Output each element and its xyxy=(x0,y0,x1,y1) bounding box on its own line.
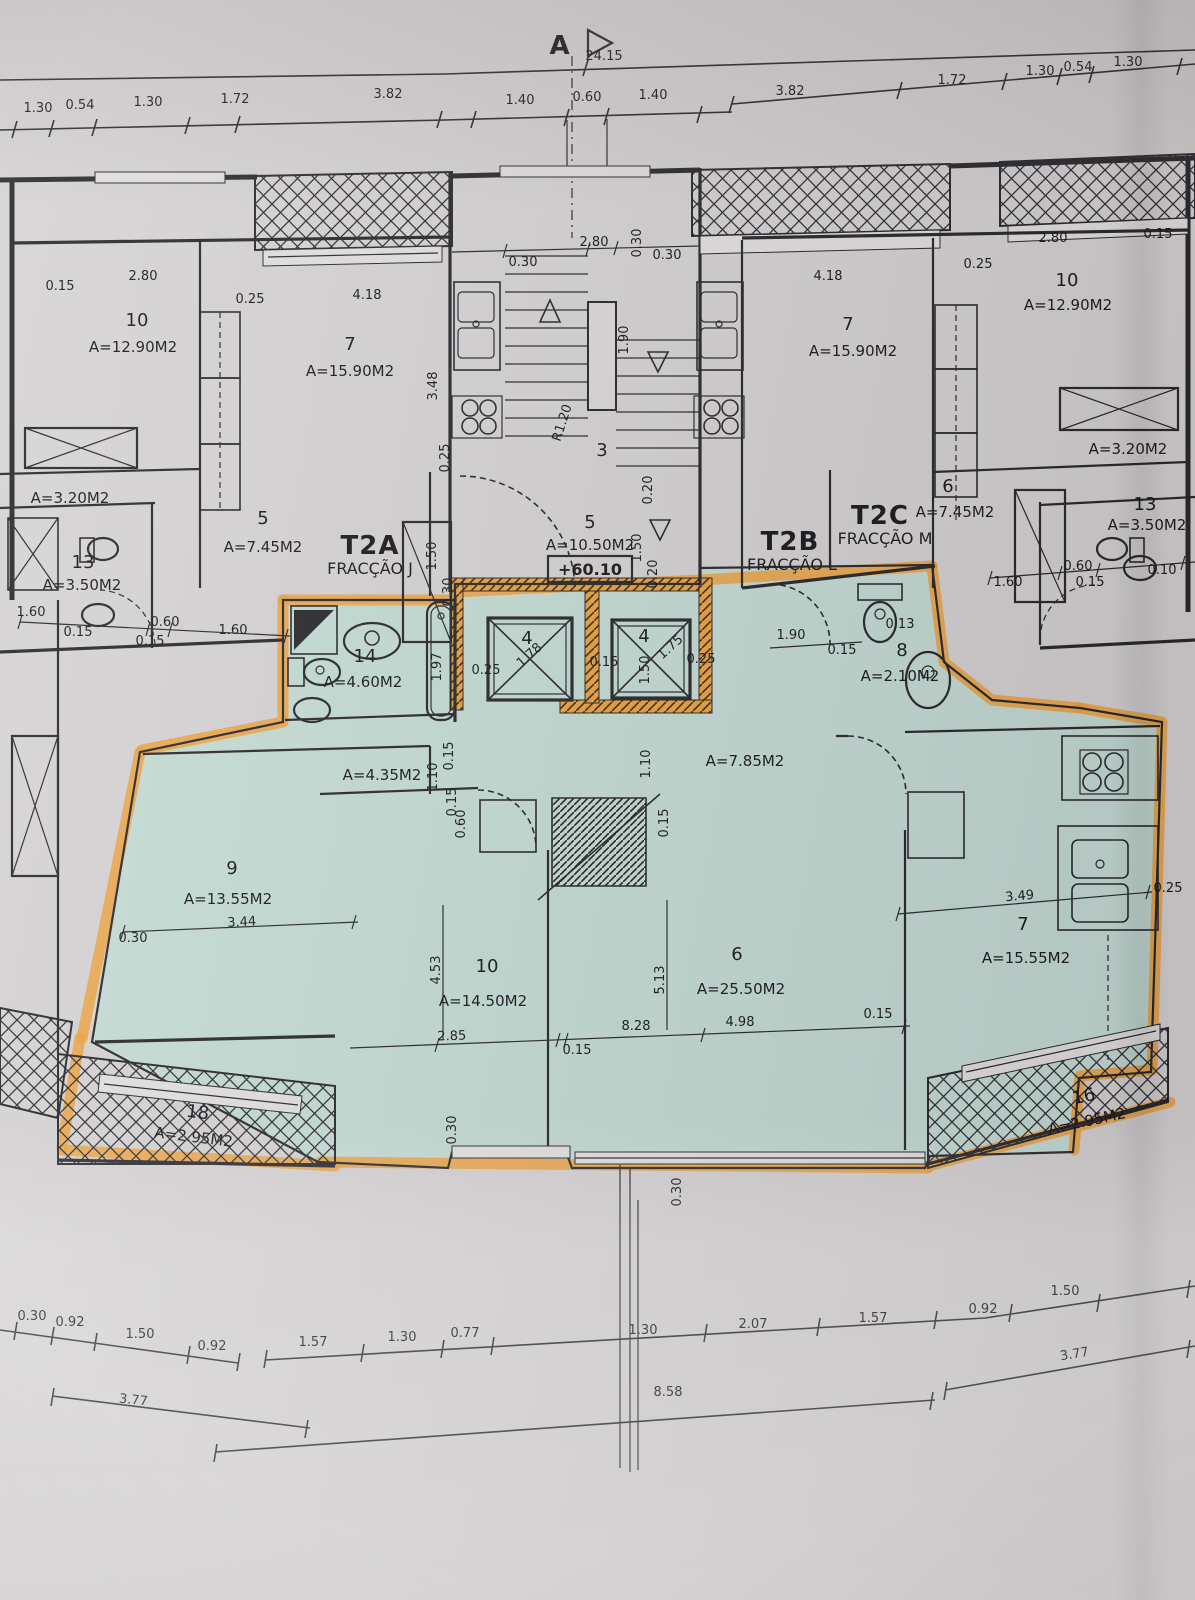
room-number: 6 xyxy=(942,476,953,497)
room-area: A=3.50M2 xyxy=(1108,516,1187,534)
dim-label: 0.60 xyxy=(151,615,180,630)
dim-label: 0.25 xyxy=(964,257,993,272)
dim-label: 0.15 xyxy=(64,625,93,640)
room-number: 10 xyxy=(126,310,149,331)
room-area: A=15.90M2 xyxy=(306,362,394,380)
floor-plan-drawing: A 24.15 1.30 0.54 1.30 1.72 3.82 1.40 0.… xyxy=(0,0,1195,1600)
dim-label: 1.60 xyxy=(994,575,1023,590)
room-number: 10 xyxy=(1056,270,1079,291)
room-area: A=3.50M2 xyxy=(43,576,122,594)
dim-label: 0.54 xyxy=(1064,60,1093,75)
dim-label: 0.30 xyxy=(670,1178,685,1207)
dim-label: 0.92 xyxy=(56,1315,85,1330)
bottom-dimension-lines xyxy=(0,1165,1195,1472)
dim-label: 0.92 xyxy=(198,1339,227,1354)
room-number: 5 xyxy=(584,512,595,533)
dim-label: 0.30 xyxy=(509,255,538,270)
dim-label: 1.10 xyxy=(426,763,441,792)
unit-fraction: FRACÇÃO M xyxy=(838,529,933,548)
room-number: 10 xyxy=(476,956,499,977)
dim-label: 2.80 xyxy=(1039,231,1068,246)
dim-label: 1.30 xyxy=(134,95,163,110)
floor-plan-photo: A 24.15 1.30 0.54 1.30 1.72 3.82 1.40 0.… xyxy=(0,0,1195,1600)
unit-code: T2B xyxy=(761,527,820,557)
dim-label: 0.25 xyxy=(687,652,716,667)
dim-label: 0.15 xyxy=(1076,575,1105,590)
room-area: A=14.50M2 xyxy=(439,992,527,1010)
dim-label: 0.15 xyxy=(590,655,619,670)
section-label: A xyxy=(549,31,570,61)
dim-label: 1.40 xyxy=(506,93,535,108)
dim-label: 0.30 xyxy=(653,248,682,263)
dim-label: 0.15 xyxy=(864,1007,893,1022)
room-area: A=15.90M2 xyxy=(809,342,897,360)
unit-fraction: FRACÇÃO L xyxy=(747,555,837,574)
dim-label: 0.25 xyxy=(1154,881,1183,896)
dim-label: 3.44 xyxy=(227,914,257,930)
elevation-label: +60.10 xyxy=(558,560,622,579)
dim-label: 1.72 xyxy=(221,92,250,107)
dim-label: 3.48 xyxy=(426,372,441,401)
dim-label: 1.50 xyxy=(425,542,440,571)
dim-label: 1.60 xyxy=(219,623,248,638)
dim-label: 8.58 xyxy=(654,1385,683,1400)
dim-label: 0.54 xyxy=(66,98,95,113)
dim-label: 0.15 xyxy=(442,742,457,771)
dim-label: 3.77 xyxy=(1059,1345,1090,1364)
dim-label: 1.57 xyxy=(859,1311,888,1326)
unit-code: T2C xyxy=(851,501,909,531)
dim-label: 1.90 xyxy=(617,326,632,355)
room-number: 4 xyxy=(638,626,649,647)
dim-label: 1.10 xyxy=(639,750,654,779)
dim-label: 0.30 xyxy=(630,229,645,258)
room-number: 13 xyxy=(72,552,95,573)
room-number: 9 xyxy=(226,858,237,879)
room-area: A=3.20M2 xyxy=(1089,440,1168,458)
room-area: A=7.45M2 xyxy=(224,538,303,556)
dim-label: 1.30 xyxy=(388,1330,417,1345)
dim-label: 1.30 xyxy=(629,1323,658,1338)
room-number: 5 xyxy=(257,508,268,529)
dim-label: 1.50 xyxy=(126,1327,155,1342)
room-number: 13 xyxy=(1134,494,1157,515)
dim-label: 2.80 xyxy=(580,235,609,250)
dim-label: 3.82 xyxy=(374,87,403,102)
room-area: A=12.90M2 xyxy=(1024,296,1112,314)
dim-label: 1.97 xyxy=(430,653,445,682)
dim-label: 0.10 xyxy=(1148,563,1177,578)
room-number: 7 xyxy=(1017,914,1028,935)
dim-label: 0.30 xyxy=(119,931,148,946)
dim-label: 0.30 xyxy=(18,1309,47,1324)
room-area: A=2.10M2 xyxy=(861,667,940,685)
unit-code: T2A xyxy=(341,531,400,561)
room-area: A=12.90M2 xyxy=(89,338,177,356)
room-number: 7 xyxy=(842,314,853,335)
dim-label: 0.20 xyxy=(646,560,661,589)
dim-label: 0.20 xyxy=(641,476,656,505)
dim-label: 1.50 xyxy=(1051,1284,1080,1299)
dim-label: 1.30 xyxy=(1026,64,1055,79)
dim-label: 0.13 xyxy=(886,617,915,632)
dim-label: 1.50 xyxy=(630,534,645,563)
dim-label: 2.85 xyxy=(437,1029,466,1045)
dim-label: 4.18 xyxy=(814,269,843,284)
dim-label: 0.60 xyxy=(454,810,469,839)
room-area: A=15.55M2 xyxy=(982,949,1070,967)
dim-label: 0.15 xyxy=(46,279,75,294)
room-number: 14 xyxy=(354,646,377,667)
dim-label: 4.53 xyxy=(429,956,444,985)
dim-label: 3.49 xyxy=(1005,888,1035,905)
dim-label: 4.18 xyxy=(353,288,382,303)
dim-label: 0.60 xyxy=(573,90,602,105)
left-edge-fragments xyxy=(0,600,72,1118)
dim-label: 1.72 xyxy=(938,73,967,88)
room-area: A=4.60M2 xyxy=(324,673,403,691)
dim-label: 1.60 xyxy=(17,605,46,620)
room-area: A=3.20M2 xyxy=(31,489,110,507)
dim-label: 1.90 xyxy=(777,628,806,643)
room-number: 3 xyxy=(596,440,607,461)
dim-label: 2.80 xyxy=(129,269,158,284)
dim-label: 0.15 xyxy=(136,634,165,649)
room-number: 8 xyxy=(896,640,907,661)
dim-label: 3.82 xyxy=(776,84,805,99)
dim-label: 1.30 xyxy=(24,101,53,116)
dim-label: 0.15 xyxy=(828,643,857,658)
room-area: A=25.50M2 xyxy=(697,980,785,998)
dim-label: 0.30 xyxy=(445,1116,460,1145)
room-area: A=7.45M2 xyxy=(916,503,995,521)
dim-label: 0.60 xyxy=(1064,559,1093,574)
room-area: A=4.35M2 xyxy=(343,766,422,784)
dim-label: 0.77 xyxy=(451,1326,480,1341)
dim-label: 0.25 xyxy=(236,292,265,307)
dim-label: 8.28 xyxy=(622,1019,651,1034)
dim-label: 2.07 xyxy=(739,1317,768,1332)
stair-core xyxy=(452,166,700,588)
dim-label: R1.20 xyxy=(550,403,576,444)
dim-label: 3.77 xyxy=(118,1392,148,1410)
dim-label: 5.13 xyxy=(653,966,668,995)
dim-label: 0.25 xyxy=(472,663,501,678)
dim-label: 1.30 xyxy=(1114,55,1143,70)
dim-label: 0.15 xyxy=(563,1043,592,1058)
dim-label: 24.15 xyxy=(585,49,622,64)
dim-label: 0.15 xyxy=(657,809,672,838)
dim-label: 0.92 xyxy=(969,1302,998,1317)
room-number: 18 xyxy=(185,1101,210,1125)
dim-label: 1.50 xyxy=(638,656,653,685)
room-area: A=7.85M2 xyxy=(706,752,785,770)
dim-label: 0.25 xyxy=(438,444,453,473)
room-number: 6 xyxy=(731,944,742,965)
dim-label: 1.57 xyxy=(299,1335,328,1350)
room-area: A=10.50M2 xyxy=(546,536,634,554)
room-number: 7 xyxy=(344,334,355,355)
unit-fraction: FRACÇÃO J xyxy=(327,559,413,578)
dim-label: 0.15 xyxy=(1144,227,1173,242)
dim-label: 4.98 xyxy=(726,1015,755,1030)
room-area: A=13.55M2 xyxy=(184,890,272,908)
dim-label: 1.40 xyxy=(639,88,668,103)
